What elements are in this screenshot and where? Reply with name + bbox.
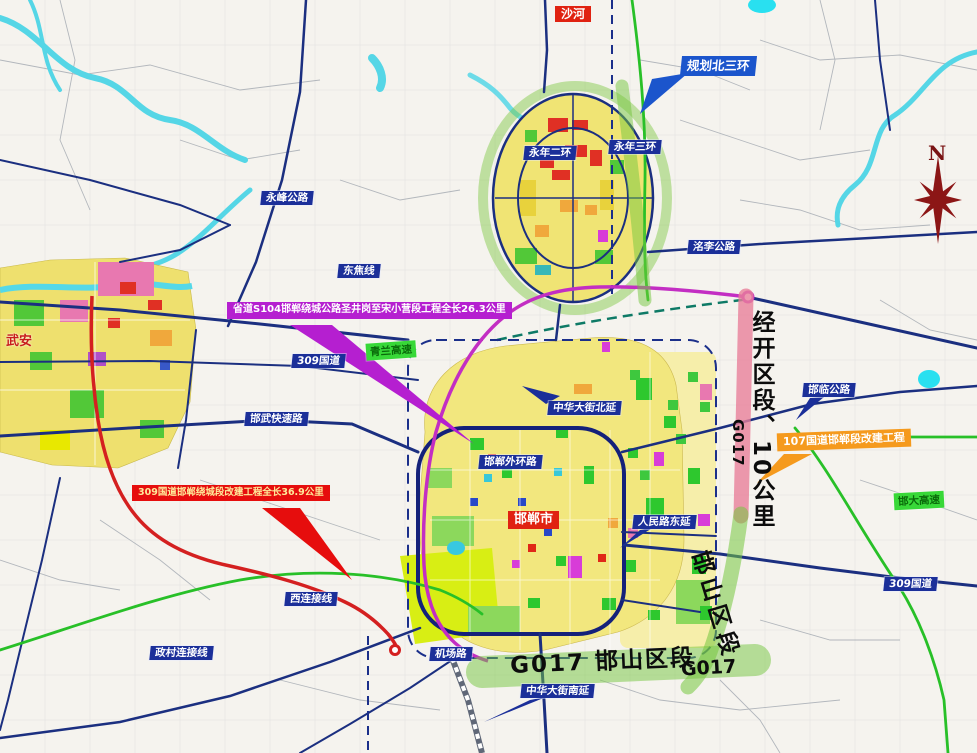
road-label-yongnian-erhuan: 永年二环: [523, 146, 576, 160]
urban-area-handan: [400, 337, 716, 652]
segment-text-jingkai: 经开区段、10公里: [744, 310, 778, 515]
place-label-wuan: 武安: [6, 330, 32, 349]
compass-north-letter: N: [928, 141, 946, 165]
road-label-g309-west: 309国道: [291, 354, 345, 368]
callout-arrow-g309: [262, 508, 352, 580]
road-label-mingli: 洺李公路: [687, 240, 740, 254]
planning-map: N 沙河 武安 邯郸市 规划北三环 省道S104邯郸绕城公路圣井岗至宋小营段工程…: [0, 0, 977, 753]
callout-arrow-north-ring: [640, 73, 688, 114]
urban-area-wuan: [0, 258, 196, 468]
road-label-yongfeng: 永峰公路: [260, 191, 313, 205]
road-label-zhengcun: 政村连接线: [149, 646, 213, 660]
pointer-zhonghua-south: [484, 697, 546, 722]
place-label-handan: 邯郸市: [508, 511, 559, 529]
highway-label-west: 青兰高速: [365, 340, 416, 360]
road-label-zhonghua-north: 中华大街北延: [547, 401, 621, 415]
segment-text-g017-vertical: G017: [729, 419, 747, 479]
map-canvas: [0, 0, 977, 753]
road-label-jichang: 机场路: [429, 647, 472, 661]
road-label-xilianjie: 西连接线: [284, 592, 337, 606]
road-label-zhonghua-south: 中华大街南延: [520, 684, 594, 698]
road-label-hanwu: 邯武快速路: [244, 412, 308, 426]
road-label-yongnian-sanhuan: 永年三环: [608, 140, 661, 154]
place-label-shahe: 沙河: [555, 6, 591, 22]
callout-north-ring: 规划北三环: [680, 56, 757, 76]
segment-text-g017-bottom: G017: [680, 656, 736, 681]
callout-g309: 309国道邯郸绕城段改建工程全长36.9公里: [132, 485, 330, 501]
callout-s104: 省道S104邯郸绕城公路圣井岗至宋小营段工程全长26.3公里: [227, 302, 512, 319]
compass-rose-icon: [901, 156, 975, 244]
road-label-dongjiao: 东焦线: [337, 264, 380, 278]
road-label-g309-east: 309国道: [883, 577, 937, 591]
road-label-waihuan: 邯郸外环路: [478, 455, 542, 469]
road-label-hanlin: 邯临公路: [802, 383, 855, 397]
highway-label-southeast: 邯大高速: [894, 491, 945, 511]
road-label-renmin: 人民路东延: [632, 515, 696, 529]
